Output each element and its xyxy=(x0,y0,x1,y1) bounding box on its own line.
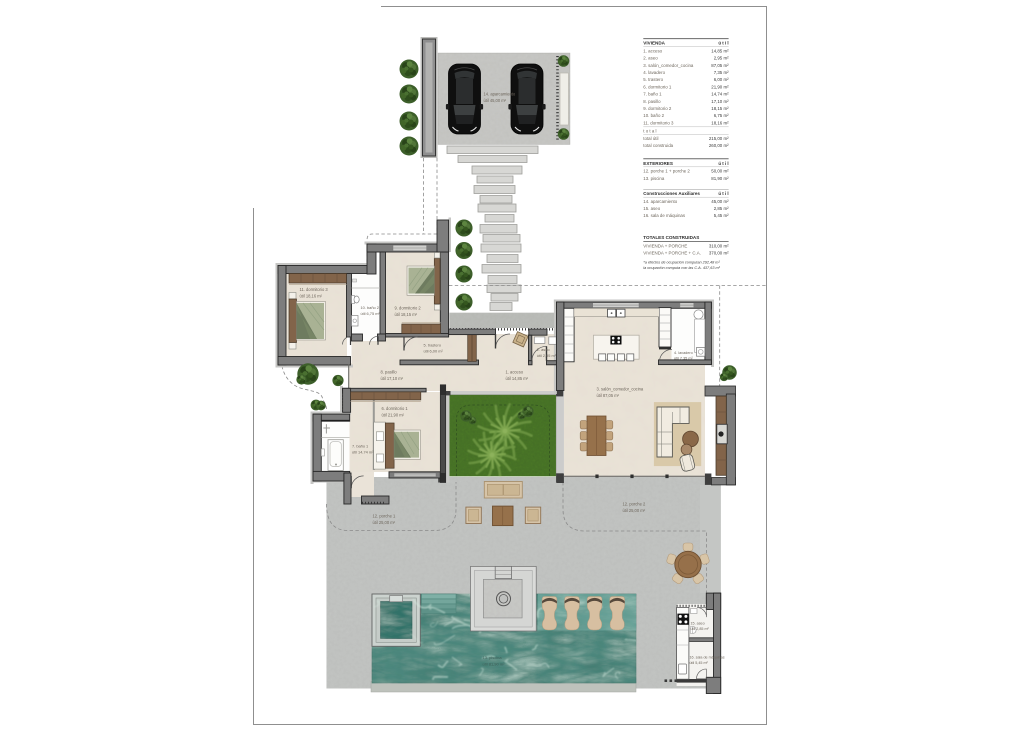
svg-text:útil 14,74 m²: útil 14,74 m² xyxy=(352,450,374,455)
svg-text:15. aseo: 15. aseo xyxy=(643,206,660,211)
svg-text:11. dormitorio 3: 11. dormitorio 3 xyxy=(643,120,674,125)
svg-text:útil 81,90 m²: útil 81,90 m² xyxy=(483,662,506,667)
svg-text:la ocupación computa con las C: la ocupación computa con las C.A. 437,63… xyxy=(643,266,720,270)
svg-text:ú t i l: ú t i l xyxy=(718,161,728,166)
svg-text:6. dormitorio 1: 6. dormitorio 1 xyxy=(643,84,672,89)
svg-text:17,10 m²: 17,10 m² xyxy=(711,99,729,104)
svg-text:50,00 m²: 50,00 m² xyxy=(711,169,729,174)
svg-text:útil 21,90 m²: útil 21,90 m² xyxy=(382,413,405,418)
svg-text:VIVIENDA + PORCHE + C.A.: VIVIENDA + PORCHE + C.A. xyxy=(643,251,701,256)
svg-text:útil 25,00 m²: útil 25,00 m² xyxy=(623,508,646,513)
svg-text:15. aseo: 15. aseo xyxy=(691,622,705,626)
svg-text:Construcciones Auxiliares: Construcciones Auxiliares xyxy=(643,191,700,196)
svg-text:7. baño 1: 7. baño 1 xyxy=(352,444,368,449)
svg-text:9. dormitorio 2: 9. dormitorio 2 xyxy=(643,106,672,111)
svg-text:2. aseo: 2. aseo xyxy=(537,347,550,352)
svg-text:útil 45,00 m²: útil 45,00 m² xyxy=(484,98,507,103)
svg-text:útil 6,00 m²: útil 6,00 m² xyxy=(424,349,444,354)
svg-text:10. baño 2: 10. baño 2 xyxy=(643,113,664,118)
svg-text:útil 17,10 m²: útil 17,10 m² xyxy=(381,376,404,381)
svg-text:*a efectos de ocupación comput: *a efectos de ocupación computan 292,48 … xyxy=(643,260,720,264)
svg-text:5. trastero: 5. trastero xyxy=(643,77,663,82)
svg-text:útil 18,16 m²: útil 18,16 m² xyxy=(300,294,323,299)
svg-text:útil 2,95 m²: útil 2,95 m² xyxy=(537,353,557,358)
svg-text:5. trastero: 5. trastero xyxy=(424,343,442,348)
svg-text:útil 14,85 m²: útil 14,85 m² xyxy=(506,376,529,381)
svg-text:3. salón_comedor_cocina: 3. salón_comedor_cocina xyxy=(597,387,644,392)
svg-text:útil 7,35 m²: útil 7,35 m² xyxy=(674,356,694,360)
svg-text:total útil: total útil xyxy=(643,136,658,141)
svg-text:3. salón_comedor_cocina: 3. salón_comedor_cocina xyxy=(643,63,694,68)
svg-text:6,00 m²: 6,00 m² xyxy=(714,77,729,82)
svg-text:útil 2,85 m²: útil 2,85 m² xyxy=(691,627,710,631)
svg-text:ú t i l: ú t i l xyxy=(718,41,728,46)
svg-text:14,74 m²: 14,74 m² xyxy=(711,92,729,97)
svg-text:12. porche 1 + porche 2: 12. porche 1 + porche 2 xyxy=(643,169,690,174)
svg-text:370,00 m²: 370,00 m² xyxy=(709,251,729,256)
svg-text:14. aparcamiento: 14. aparcamiento xyxy=(643,199,677,204)
svg-text:VIVIENDA: VIVIENDA xyxy=(643,41,665,46)
svg-text:4. lavadero: 4. lavadero xyxy=(643,70,665,75)
svg-text:7,35 m²: 7,35 m² xyxy=(714,70,729,75)
svg-text:12. porche 1: 12. porche 1 xyxy=(373,514,396,519)
svg-text:310,00 m²: 310,00 m² xyxy=(709,243,729,248)
svg-text:18,16 m²: 18,16 m² xyxy=(711,120,729,125)
svg-text:útil 87,05 m²: útil 87,05 m² xyxy=(597,393,620,398)
svg-text:2,85 m²: 2,85 m² xyxy=(714,206,729,211)
svg-text:16. sala de máquinas: 16. sala de máquinas xyxy=(690,656,725,660)
svg-text:11. dormitorio 3: 11. dormitorio 3 xyxy=(300,287,329,292)
svg-text:87,05 m²: 87,05 m² xyxy=(711,63,729,68)
svg-text:VIVIENDA + PORCHE: VIVIENDA + PORCHE xyxy=(643,243,687,248)
svg-text:10. baño 2: 10. baño 2 xyxy=(361,305,379,310)
svg-text:13. piscina: 13. piscina xyxy=(643,176,665,181)
svg-text:81,90 m²: 81,90 m² xyxy=(711,176,729,181)
svg-text:total construida: total construida xyxy=(643,143,673,148)
svg-text:2. aseo: 2. aseo xyxy=(643,56,658,61)
svg-text:4. lavadero: 4. lavadero xyxy=(674,351,693,355)
svg-text:6. dormitorio 1: 6. dormitorio 1 xyxy=(382,406,409,411)
svg-text:6,75 m²: 6,75 m² xyxy=(714,113,729,118)
svg-text:útil 18,15 m²: útil 18,15 m² xyxy=(395,312,418,317)
svg-text:2,95 m²: 2,95 m² xyxy=(714,56,729,61)
svg-text:21,90 m²: 21,90 m² xyxy=(711,84,729,89)
svg-text:1. acceso: 1. acceso xyxy=(643,48,662,53)
svg-text:9. dormitorio 2: 9. dormitorio 2 xyxy=(395,306,422,311)
svg-text:45,00 m²: 45,00 m² xyxy=(711,199,729,204)
svg-text:TOTALES CONSTRUIDAS: TOTALES CONSTRUIDAS xyxy=(643,235,699,240)
svg-text:8. pasillo: 8. pasillo xyxy=(381,370,398,375)
svg-text:8. pasillo: 8. pasillo xyxy=(643,99,661,104)
svg-text:1. acceso: 1. acceso xyxy=(506,370,524,375)
svg-text:7. baño 1: 7. baño 1 xyxy=(643,92,662,97)
svg-text:t o t a l: t o t a l xyxy=(643,128,656,133)
svg-text:13. piscina: 13. piscina xyxy=(483,655,503,660)
svg-text:ú t i l: ú t i l xyxy=(718,191,728,196)
svg-text:14. aparcamiento: 14. aparcamiento xyxy=(484,92,516,97)
svg-text:14,85 m²: 14,85 m² xyxy=(711,48,729,53)
svg-text:260,00 m²: 260,00 m² xyxy=(709,143,729,148)
svg-text:215,00 m²: 215,00 m² xyxy=(709,136,729,141)
svg-text:útil 5,45 m²: útil 5,45 m² xyxy=(690,661,709,665)
svg-text:útil 6,75 m²: útil 6,75 m² xyxy=(361,311,381,316)
svg-text:EXTERIORES: EXTERIORES xyxy=(643,161,673,166)
svg-text:18,15 m²: 18,15 m² xyxy=(711,106,729,111)
svg-text:útil 25,00 m²: útil 25,00 m² xyxy=(373,520,396,525)
svg-text:16. sala de máquinas: 16. sala de máquinas xyxy=(643,213,686,218)
svg-text:5,45 m²: 5,45 m² xyxy=(714,213,729,218)
svg-text:12. porche 2: 12. porche 2 xyxy=(623,502,646,507)
